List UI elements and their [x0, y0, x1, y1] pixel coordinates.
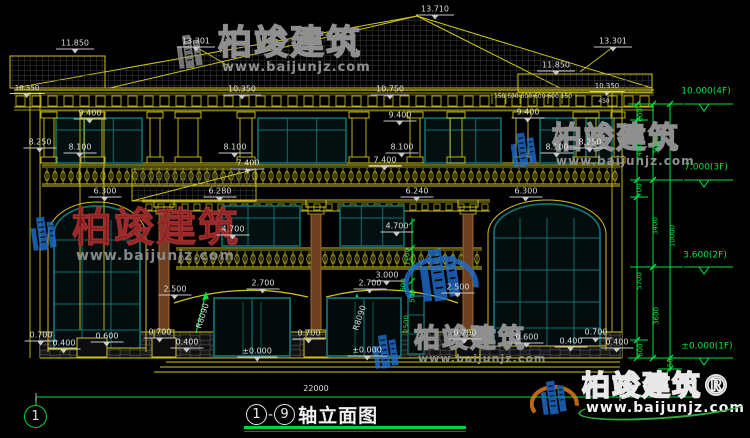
dim-label: 0.400	[560, 338, 583, 347]
dim-label: 4.700	[222, 226, 245, 235]
dim-label: 8.250	[29, 139, 52, 148]
axis-start-bubble: 1	[246, 404, 267, 425]
axis-bubble-1: 1	[24, 405, 47, 428]
dim-label: 450	[598, 99, 609, 105]
dim-label: 0.400	[606, 339, 629, 348]
dim-label: 9.400	[517, 109, 540, 118]
dim-label: 0.700	[298, 330, 321, 339]
green-dim-label: 3.600(2F)	[683, 252, 727, 261]
title-underline	[244, 426, 466, 429]
dim-label: 13.301	[599, 38, 627, 47]
green-dim-label: ±0.000(1F)	[681, 343, 732, 352]
dim-label: 2.700	[252, 280, 275, 289]
dim-label: ±0.000	[352, 347, 382, 356]
green-dim-label: 450	[668, 358, 675, 371]
green-dim-label: 10.000(4F)	[681, 88, 730, 97]
dim-label: 0.600	[516, 334, 539, 343]
dim-label: 0.700	[454, 330, 477, 339]
dim-label: 4.700	[386, 223, 409, 232]
green-dim-label: 600	[638, 108, 645, 121]
dim-label: 13.710	[421, 6, 449, 15]
dim-label: 8.100	[224, 144, 247, 153]
cad-elevation-drawing: 柏竣建筑www.baijunjz.com柏竣建筑www.baijunjz.com…	[0, 0, 750, 438]
dim-label: 11.850	[61, 40, 89, 49]
dim-label: 8.100	[69, 144, 92, 153]
axis-end-bubble: 9	[274, 404, 295, 425]
dim-label: 10.750	[376, 86, 404, 95]
title-text: 轴立面图	[298, 401, 378, 428]
dim-label: 7.400	[374, 157, 397, 166]
green-dim-label: 10000	[670, 225, 677, 247]
dim-label: 6.280	[209, 188, 232, 197]
dim-label: 7.400	[237, 160, 260, 169]
dim-label: 22000	[303, 385, 328, 393]
dim-label: 0.600	[96, 333, 119, 342]
dim-label: 10.350	[15, 85, 40, 93]
green-dim-label: 3600	[654, 307, 661, 325]
green-dim-label: 2500	[404, 315, 411, 333]
green-dim-label: 3000	[654, 136, 661, 154]
dim-label: 9.400	[389, 112, 412, 121]
axis-range-dash: -	[268, 407, 273, 423]
green-dim-label: 1100	[405, 248, 412, 266]
dim-label: 2.500	[447, 284, 470, 293]
dim-label: ±0.000	[242, 348, 272, 357]
dim-label: 6.300	[94, 188, 117, 197]
dim-label: 10.350	[228, 86, 256, 95]
dim-label: 8.100	[546, 144, 569, 153]
dim-label: 0.400	[53, 340, 76, 349]
title-underline-thin	[244, 431, 466, 432]
dim-label: 6.240	[406, 188, 429, 197]
green-dim-label: 600	[638, 343, 645, 356]
dim-label: 6.300	[515, 188, 538, 197]
dim-label: 0.400	[176, 339, 199, 348]
building-linework	[0, 0, 750, 438]
green-dim-label: 5700	[637, 272, 644, 290]
green-dim-label: 2400	[637, 143, 644, 161]
green-dim-label: 700	[637, 183, 644, 196]
green-dim-label: 500	[410, 289, 417, 302]
dim-label: 150 600 600 600 600 150	[494, 94, 572, 100]
dim-label: 2.500	[164, 286, 187, 295]
dim-label: 8.250	[579, 139, 602, 148]
dim-label: 0.700	[585, 329, 608, 338]
dim-label: 0.700	[149, 329, 172, 338]
dim-label: 10.350	[595, 83, 620, 91]
dim-label: 9.400	[79, 110, 102, 119]
dim-label: 8.100	[391, 144, 414, 153]
green-dim-label: 3400	[653, 217, 660, 235]
green-dim-label: 600	[401, 278, 408, 291]
dim-label: 11.850	[542, 62, 570, 71]
dim-label: 0.700	[30, 332, 53, 341]
green-dim-label: 7.000(3F)	[684, 164, 728, 173]
drawing-title: 1 - 9 轴立面图	[246, 401, 378, 428]
dim-label: 2.700	[359, 280, 382, 289]
dim-label: 13.301	[182, 38, 210, 47]
